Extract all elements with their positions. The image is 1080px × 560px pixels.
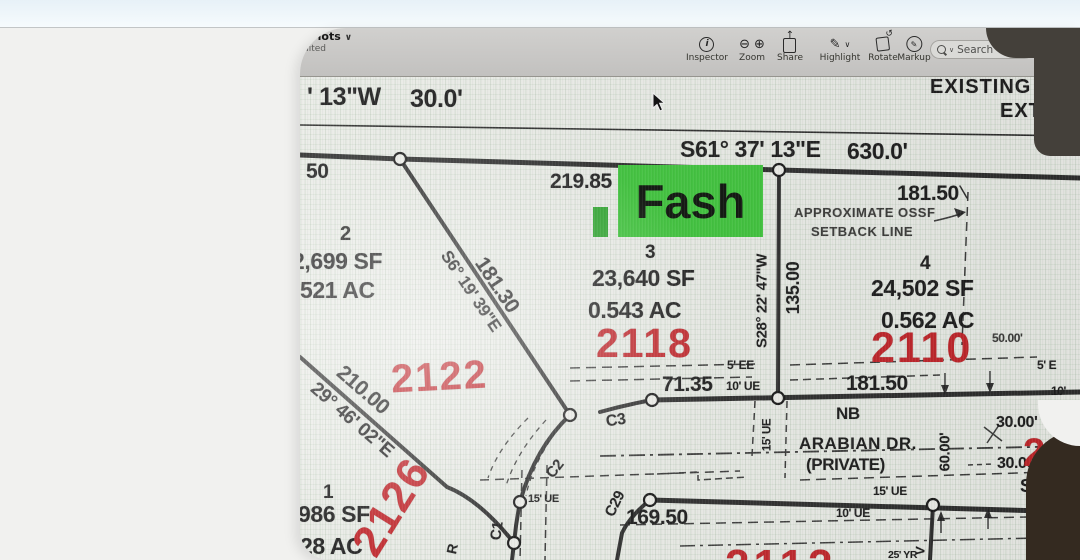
distance-top-left: 30.0' xyxy=(410,87,463,112)
lot2-address: 2122 xyxy=(390,354,489,399)
inspector-label: Inspector xyxy=(686,53,728,63)
lot3-address: 2118 xyxy=(596,323,693,364)
bearing-s28: S28° 22' 47"W xyxy=(755,254,770,348)
dim-50: 50 xyxy=(306,161,329,182)
search-chevron-icon: ∨ xyxy=(949,46,954,54)
lot2-acres: .521 AC xyxy=(300,279,375,302)
photo-background-top-right xyxy=(1034,28,1080,156)
magnifier-icon xyxy=(937,45,946,54)
markup-pen-circle-icon: ✎ xyxy=(906,36,922,52)
highlight-pen-icon: ✎ xyxy=(830,37,841,52)
dim-71-35: 71.35 xyxy=(662,374,713,395)
dim-50-00: 50.00' xyxy=(992,332,1022,344)
dim-181-50-mid: 181.50 xyxy=(846,373,908,394)
dim-135-00: 135.00 xyxy=(784,262,802,315)
easement-5-ee: 5' EE xyxy=(727,359,754,371)
dim-219-85: 219.85 xyxy=(550,171,612,192)
easement-15-ue-right: 15' UE xyxy=(873,485,907,497)
highlight-dropdown-icon[interactable]: ∨ xyxy=(845,40,851,49)
edited-label: dited xyxy=(303,44,352,54)
easement-10-ue-bottom: 10' UE xyxy=(836,507,870,519)
highlight-label-fash: Fash xyxy=(618,165,763,237)
preview-toolbar: h lots∨ dited i Inspector ⊖⊕ Zoom ↑ Shar… xyxy=(300,28,1080,77)
ossf-note-line1: APPROXIMATE OSSF xyxy=(794,206,935,219)
magnifier-minus-plus-icons: ⊖⊕ xyxy=(739,36,765,52)
page-background: ' 13"W 30.0' EXISTING EXT S61° 37' 13"E … xyxy=(0,0,1080,560)
info-circle-icon: i xyxy=(699,37,714,52)
easement-15-ue-vertical: 15' UE xyxy=(762,419,774,451)
lot4-square-feet: 24,502 SF xyxy=(871,277,974,300)
address-2112: 2112 xyxy=(725,544,836,560)
north-distance: 630.0' xyxy=(847,140,908,163)
rotate-label: Rotate xyxy=(868,53,897,63)
easement-15-ue-left: 15' UE xyxy=(528,494,559,505)
dim-169-50: 169.50 xyxy=(626,507,688,528)
window-title: h lots xyxy=(306,30,341,43)
lot2-square-feet: 2,699 SF xyxy=(300,250,382,273)
ossf-note-line2: SETBACK LINE xyxy=(811,225,913,238)
markup-label: Markup xyxy=(897,53,930,63)
bearing-top-left: ' 13"W xyxy=(307,85,381,110)
inspector-button[interactable]: i Inspector xyxy=(686,36,728,63)
street-nb-label: NB xyxy=(836,405,860,422)
lot2-number: 2 xyxy=(340,224,351,244)
top-band xyxy=(0,0,1080,28)
existing-road-line xyxy=(300,125,1080,136)
search-placeholder: Search xyxy=(957,44,993,56)
street-private: (PRIVATE) xyxy=(806,456,885,473)
lot4-address: 2110 xyxy=(871,327,972,370)
markup-button[interactable]: ✎ Markup xyxy=(897,36,930,63)
dim-30-00-upper: 30.00' xyxy=(996,415,1037,431)
curve-c1-label: C1 xyxy=(488,521,505,541)
lot3-acres: 0.543 AC xyxy=(588,299,681,322)
easement-5-e: 5' E xyxy=(1037,359,1056,371)
zoom-label: Zoom xyxy=(739,53,765,63)
existing-label: EXISTING xyxy=(930,77,1031,97)
share-label: Share xyxy=(777,53,803,63)
rotate-page-icon: ↺ xyxy=(876,36,891,51)
mouse-cursor-icon xyxy=(652,92,668,112)
easement-10: 10' xyxy=(1051,385,1066,397)
north-bearing: S61° 37' 13"E xyxy=(680,138,821,161)
curve-c3-line xyxy=(600,400,652,412)
easement-10-ue: 10' UE xyxy=(726,380,760,392)
highlight-button[interactable]: ✎ ∨ Highlight xyxy=(820,36,861,63)
dim-60-00: 60.00' xyxy=(938,433,953,472)
share-box-arrow-icon: ↑ xyxy=(783,38,796,53)
lot3-number: 3 xyxy=(645,243,655,262)
street-name: ARABIAN DR. xyxy=(799,435,917,452)
rotate-button[interactable]: ↺ Rotate xyxy=(868,36,897,63)
title-chevron-icon[interactable]: ∨ xyxy=(345,33,352,43)
share-button[interactable]: ↑ Share xyxy=(777,36,803,63)
curve-c3-label: C3 xyxy=(605,412,627,431)
lot3-square-feet: 23,640 SF xyxy=(592,267,695,290)
lot4-number: 4 xyxy=(920,254,930,273)
lot1-number: 1 xyxy=(323,483,333,502)
dim-181-50-top: 181.50 xyxy=(897,183,959,204)
screen-photo: ' 13"W 30.0' EXISTING EXT S61° 37' 13"E … xyxy=(300,28,1080,560)
zoom-buttons[interactable]: ⊖⊕ Zoom xyxy=(739,36,765,63)
highlight-label: Highlight xyxy=(820,53,861,63)
note-25-yr: 25' YR xyxy=(888,550,917,560)
lot3-lot4-boundary xyxy=(778,170,779,398)
highlight-nub xyxy=(593,207,608,237)
window-title-block: h lots∨ dited xyxy=(306,30,352,54)
